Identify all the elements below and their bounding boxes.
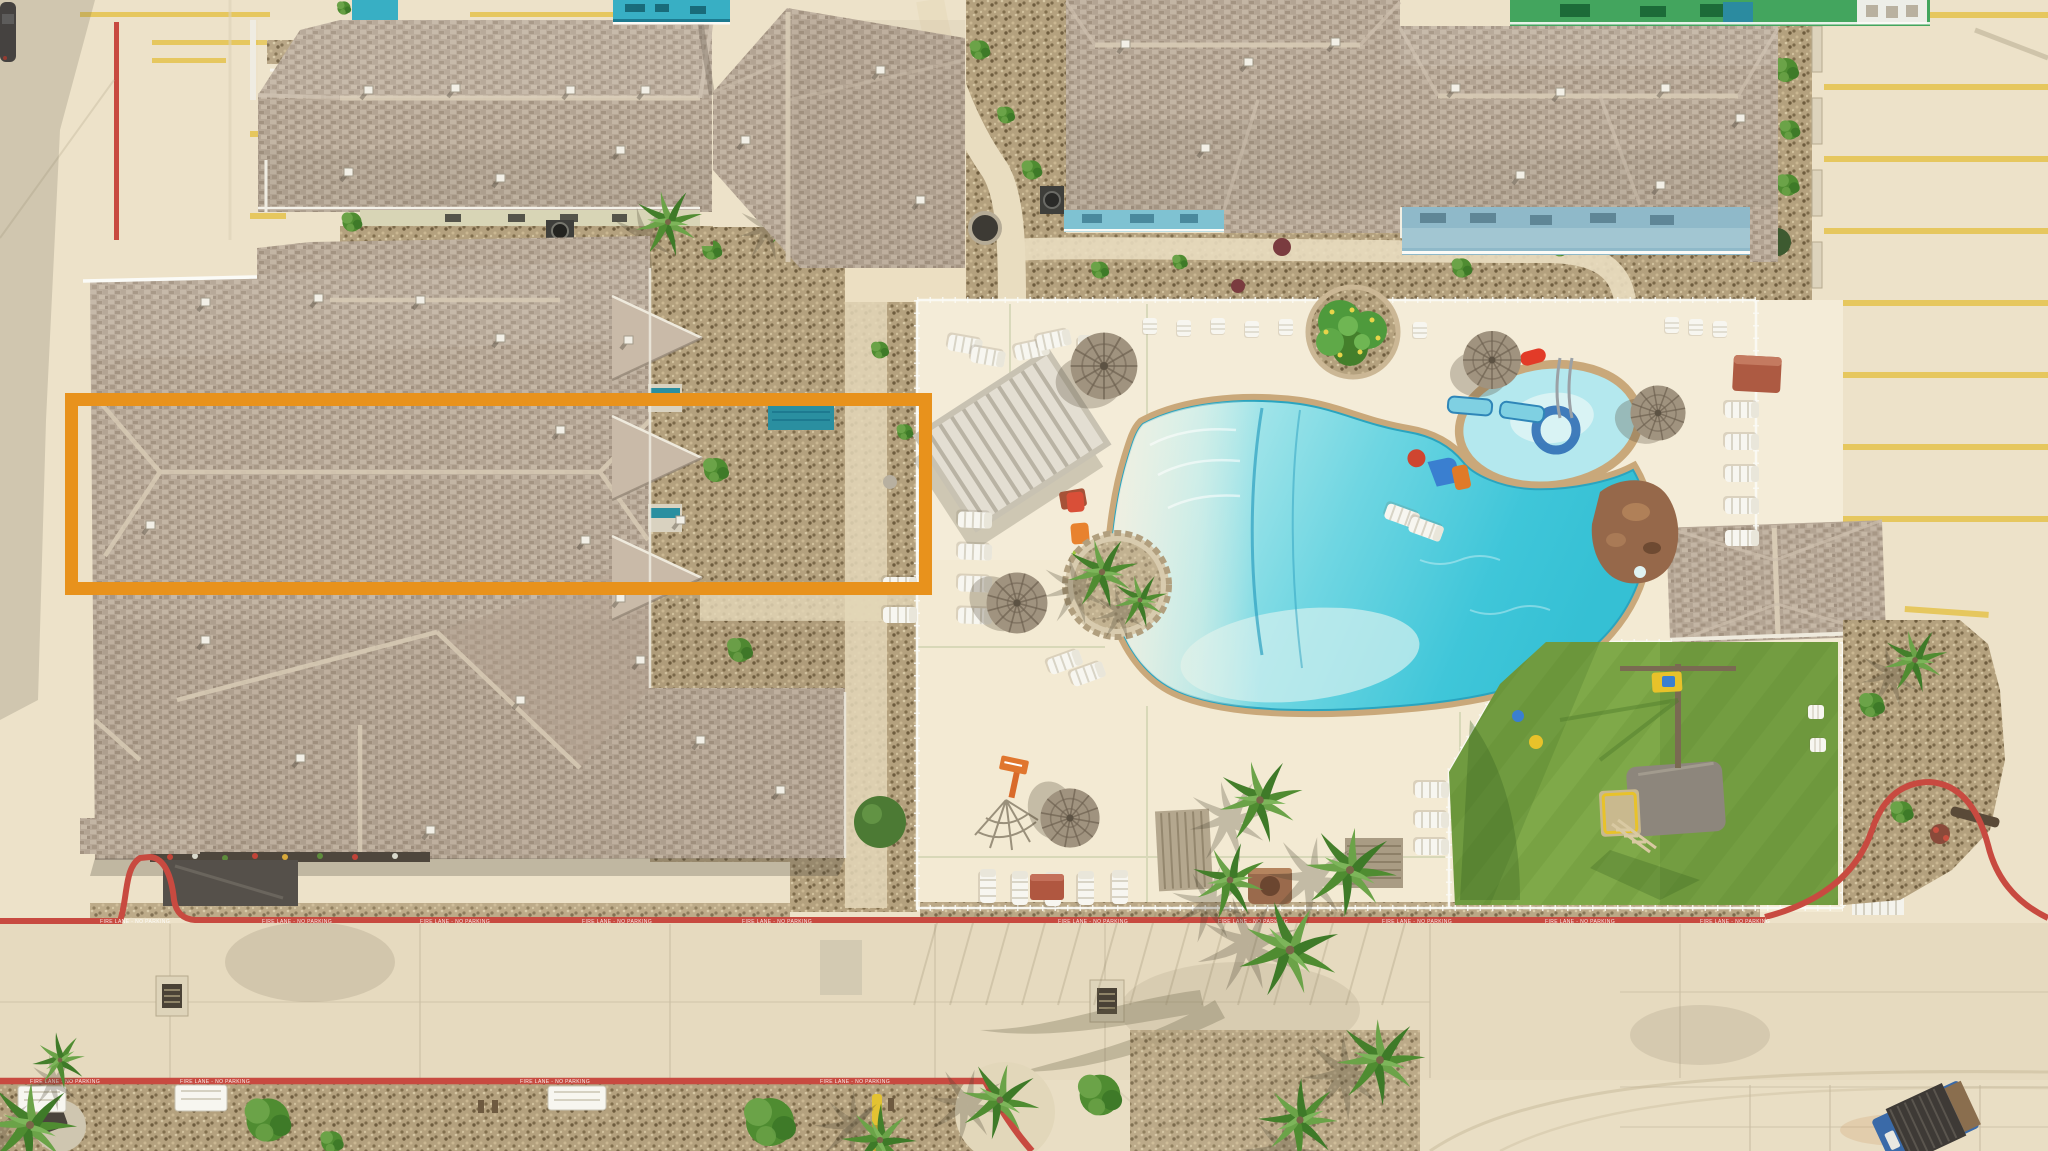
svg-text:FIRE LANE - NO PARKING: FIRE LANE - NO PARKING xyxy=(1700,919,1770,925)
playground xyxy=(1449,620,2005,905)
building-top-right-1 xyxy=(1064,0,1448,238)
storm-drain xyxy=(156,976,188,1016)
svg-text:FIRE LANE - NO PARKING: FIRE LANE - NO PARKING xyxy=(742,919,812,925)
small-tree xyxy=(854,796,906,848)
ac-unit xyxy=(1040,186,1064,214)
svg-text:FIRE LANE - NO PARKING: FIRE LANE - NO PARKING xyxy=(1382,919,1452,925)
building-top-right-2 xyxy=(1400,26,1778,262)
red-curb-vertical xyxy=(114,22,119,240)
svg-text:FIRE LANE - NO PARKING: FIRE LANE - NO PARKING xyxy=(1545,919,1615,925)
flower-planter xyxy=(1308,287,1398,377)
svg-text:FIRE LANE - NO PARKING: FIRE LANE - NO PARKING xyxy=(582,919,652,925)
fire-pit xyxy=(970,213,1000,243)
svg-text:FIRE LANE - NO PARKING: FIRE LANE - NO PARKING xyxy=(100,919,170,925)
svg-text:FIRE LANE - NO PARKING: FIRE LANE - NO PARKING xyxy=(180,1079,250,1085)
storage-box-2 xyxy=(1732,355,1782,393)
green-building xyxy=(1510,0,1930,26)
aerial-scene: FIRE LANE - NO PARKING FIRE LANE - NO PA… xyxy=(0,0,2048,1151)
svg-text:FIRE LANE - NO PARKING: FIRE LANE - NO PARKING xyxy=(520,1079,590,1085)
aerial-resort-photo: FIRE LANE - NO PARKING FIRE LANE - NO PA… xyxy=(0,0,2048,1151)
svg-text:FIRE LANE - NO PARKING: FIRE LANE - NO PARKING xyxy=(1058,919,1128,925)
svg-text:FIRE LANE - NO PARKING: FIRE LANE - NO PARKING xyxy=(420,919,490,925)
svg-text:FIRE LANE - NO PARKING: FIRE LANE - NO PARKING xyxy=(262,919,332,925)
svg-text:FIRE LANE - NO PARKING: FIRE LANE - NO PARKING xyxy=(820,1079,890,1085)
rock-waterfall xyxy=(1592,480,1679,583)
